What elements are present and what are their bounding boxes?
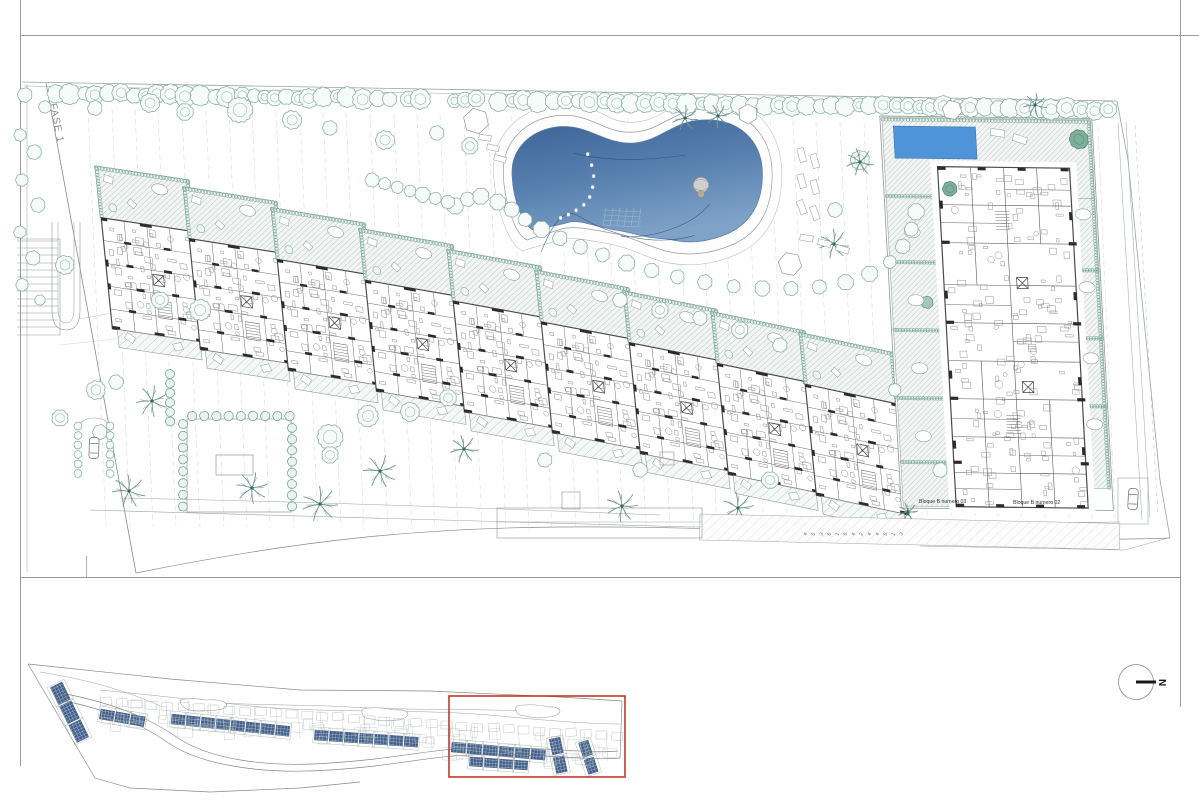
svg-text:N: N [1156, 679, 1167, 686]
svg-text:Bloque B numero 03: Bloque B numero 03 [919, 499, 966, 505]
svg-text:Bloque B numero 02: Bloque B numero 02 [1013, 500, 1060, 506]
